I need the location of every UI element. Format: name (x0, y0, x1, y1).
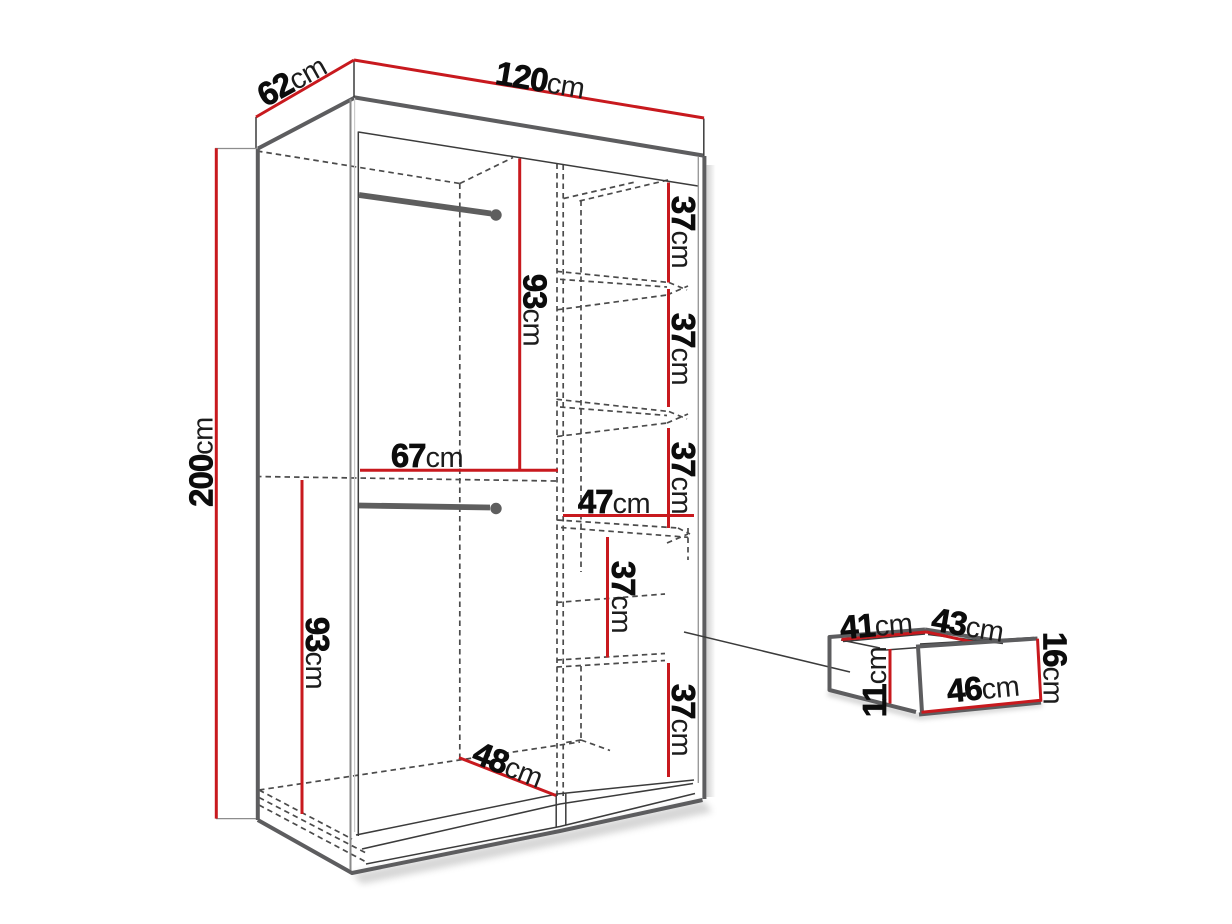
svg-text:93cm: 93cm (517, 274, 554, 346)
svg-text:16cm: 16cm (1037, 632, 1074, 704)
svg-text:37cm: 37cm (665, 684, 702, 756)
svg-text:37cm: 37cm (665, 196, 702, 268)
svg-text:37cm: 37cm (665, 313, 702, 385)
svg-text:37cm: 37cm (665, 442, 702, 514)
svg-text:200cm: 200cm (183, 417, 220, 507)
svg-text:93cm: 93cm (299, 617, 336, 689)
svg-text:11cm: 11cm (856, 647, 893, 718)
svg-text:47cm: 47cm (578, 483, 650, 520)
svg-text:37cm: 37cm (605, 561, 642, 633)
svg-text:67cm: 67cm (391, 437, 463, 474)
